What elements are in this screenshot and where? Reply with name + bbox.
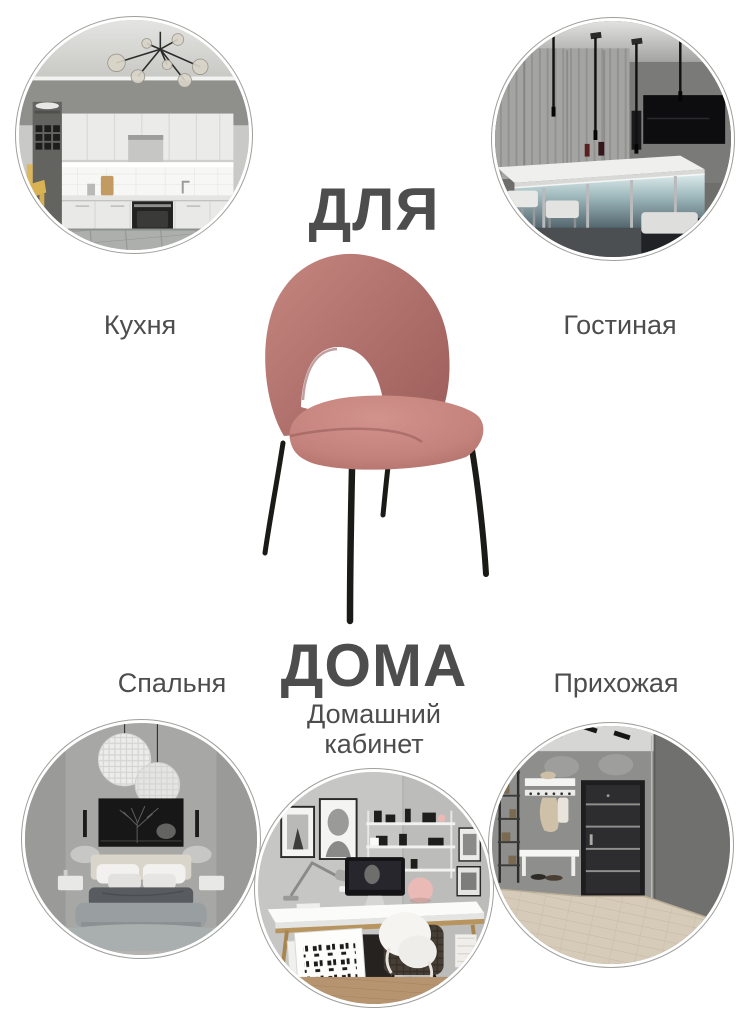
- living-room-label: Гостиная: [520, 310, 720, 340]
- kitchen-label: Кухня: [40, 310, 240, 340]
- hallway-label: Прихожая: [516, 668, 716, 698]
- entrance-door: [581, 780, 645, 898]
- home-office-photo: [254, 768, 494, 1008]
- wall-picture: [98, 798, 183, 846]
- home-office-photo-mask: [258, 772, 490, 1004]
- chair-seat: [290, 396, 484, 470]
- upper-cabinets: [60, 114, 233, 163]
- wall-posters: [281, 799, 356, 859]
- bed: [75, 854, 206, 929]
- home-office-label: Домашний кабинет: [294, 699, 454, 759]
- title-for: ДЛЯ: [0, 178, 748, 242]
- product-chair-photo: [250, 250, 500, 630]
- bedroom-scene: [25, 723, 257, 955]
- chair-illustration: [250, 250, 500, 630]
- bedroom-floor: [25, 924, 257, 955]
- hallway-photo-mask: [492, 726, 730, 964]
- hallway-photo: [488, 722, 734, 968]
- promo-banner: ДЛЯ ДОМА Кухня Гостиная Спальня Домашний…: [0, 0, 754, 1032]
- bedroom-photo: [21, 719, 261, 959]
- home-office-scene: [258, 772, 490, 1004]
- bedroom-label: Спальня: [72, 668, 272, 698]
- hallway-scene: [492, 726, 730, 964]
- bedroom-photo-mask: [25, 723, 257, 955]
